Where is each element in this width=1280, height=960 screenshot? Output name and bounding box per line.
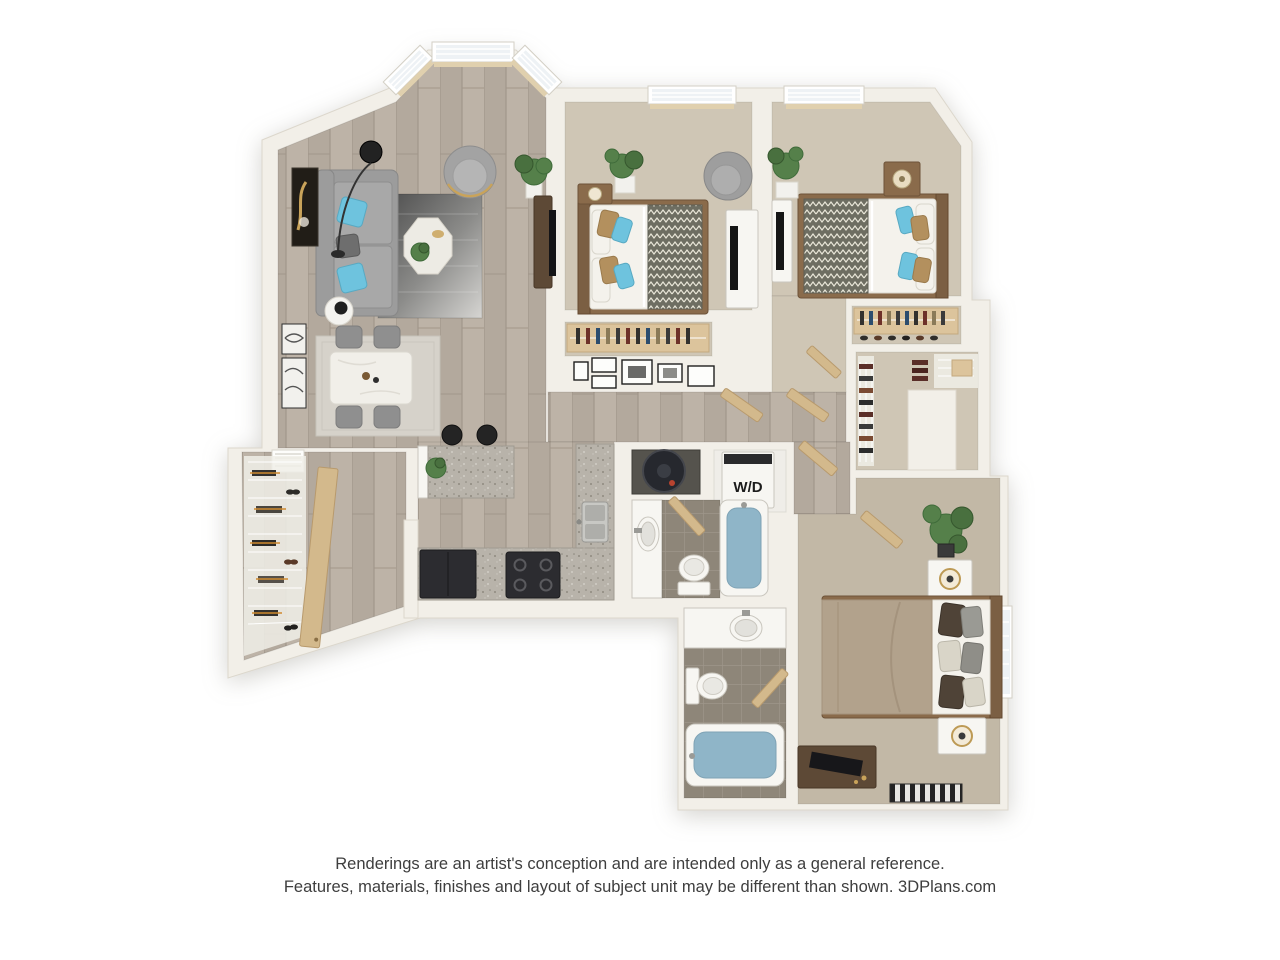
dining-chair: [374, 326, 400, 348]
kitchen-entry-wall: [404, 520, 418, 618]
bar-stool: [477, 425, 497, 445]
hanging-clothes: [912, 360, 928, 381]
disclaimer-line2: Features, materials, finishes and layout…: [0, 876, 1280, 899]
chevron-blanket: [648, 205, 702, 309]
refrigerator: [420, 550, 476, 598]
dining-chair: [374, 406, 400, 428]
accent-chair: [704, 152, 752, 200]
toilet: [678, 555, 710, 595]
nightstand: [578, 184, 612, 204]
tv-screen: [549, 210, 556, 276]
nightstand: [884, 162, 920, 196]
dresser: [726, 210, 758, 308]
bed: [822, 596, 1002, 718]
bed: [798, 194, 948, 298]
disclaimer: Renderings are an artist's conception an…: [0, 853, 1280, 899]
bedroom1-window: [648, 86, 736, 109]
dining-chair: [336, 406, 362, 428]
dresser: [798, 746, 876, 788]
faucet: [634, 528, 642, 533]
bed: [578, 200, 708, 314]
armchair: [444, 146, 496, 198]
bedroom2-window: [784, 86, 864, 109]
tub-faucet: [741, 502, 747, 508]
faucet: [577, 520, 582, 525]
tv-on-dresser: [776, 212, 784, 270]
water-heater-closet: [643, 450, 685, 492]
dining-table: [330, 352, 412, 404]
bar-stool: [442, 425, 462, 445]
nightstand: [938, 718, 986, 754]
floor-plan-rendering: W/D: [0, 0, 1280, 960]
bathtub: [686, 724, 784, 786]
wall-art-swirls: [282, 324, 306, 408]
faucet: [742, 610, 750, 616]
accent-rug: [890, 784, 962, 802]
tv-on-dresser: [730, 226, 738, 290]
bay-window-center: [432, 42, 514, 67]
breakfast-bar: [418, 446, 514, 498]
decor-tray: [432, 230, 444, 238]
corridor-floor: [794, 442, 850, 514]
nightstand: [928, 560, 972, 598]
dresser: [772, 200, 792, 282]
lamp: [589, 188, 602, 201]
coat-closet-shelving: [244, 456, 306, 656]
floor-plan-page: W/D: [0, 0, 1280, 960]
wall-art-abstract: [292, 168, 318, 246]
bathtub: [720, 500, 768, 596]
storage-box: [952, 360, 972, 376]
tub-faucet: [689, 753, 695, 759]
coffee-table: [404, 218, 452, 274]
side-table-lamp: [325, 297, 353, 325]
sofa: [316, 170, 398, 316]
stove-cooktop: [506, 552, 560, 598]
disclaimer-line1: Renderings are an artist's conception an…: [0, 853, 1280, 876]
washer-dryer-label: W/D: [733, 479, 762, 496]
bedroom-1-closet: [567, 324, 709, 352]
dining-chair: [336, 326, 362, 348]
walkin-closet-wall-block: [908, 390, 956, 470]
chevron-blanket: [804, 199, 868, 293]
